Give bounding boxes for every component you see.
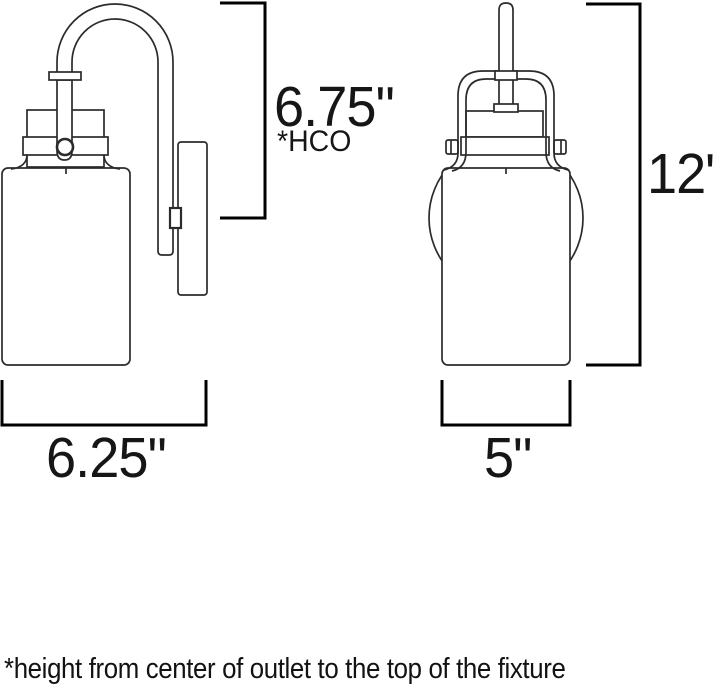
front-left-tab bbox=[446, 140, 458, 154]
front-upper-collar bbox=[495, 71, 517, 80]
front-shade bbox=[442, 168, 570, 365]
side-flare-right bbox=[104, 155, 120, 169]
height-dimension-label: 12" bbox=[647, 146, 717, 203]
front-socket-cup bbox=[466, 111, 543, 137]
front-lower-collar bbox=[494, 104, 518, 112]
side-shade bbox=[2, 168, 130, 365]
front-socket-band bbox=[461, 137, 549, 155]
height-dimension-bracket bbox=[586, 4, 640, 365]
hco-note-label: *HCO bbox=[277, 127, 351, 157]
side-flare-left bbox=[11, 155, 27, 169]
side-view-drawing bbox=[2, 4, 207, 365]
front-right-tab bbox=[554, 140, 566, 154]
width-dimension-label: 5" bbox=[484, 430, 531, 487]
front-view-drawing bbox=[429, 3, 583, 365]
side-collar bbox=[49, 72, 81, 80]
side-backplate bbox=[178, 142, 207, 295]
hco-dimension-bracket bbox=[220, 3, 265, 218]
footnote-text: *height from center of outlet to the top… bbox=[4, 653, 565, 686]
side-thumbscrew-icon bbox=[57, 139, 73, 155]
depth-dimension-bracket bbox=[2, 380, 206, 425]
dimension-diagram: 6.75" *HCO 12" 6.25" 5" *height from cen… bbox=[0, 0, 717, 694]
side-outlet-box bbox=[170, 208, 181, 228]
front-rod bbox=[499, 3, 513, 111]
width-dimension-bracket bbox=[442, 380, 570, 425]
depth-dimension-label: 6.25" bbox=[46, 430, 166, 487]
